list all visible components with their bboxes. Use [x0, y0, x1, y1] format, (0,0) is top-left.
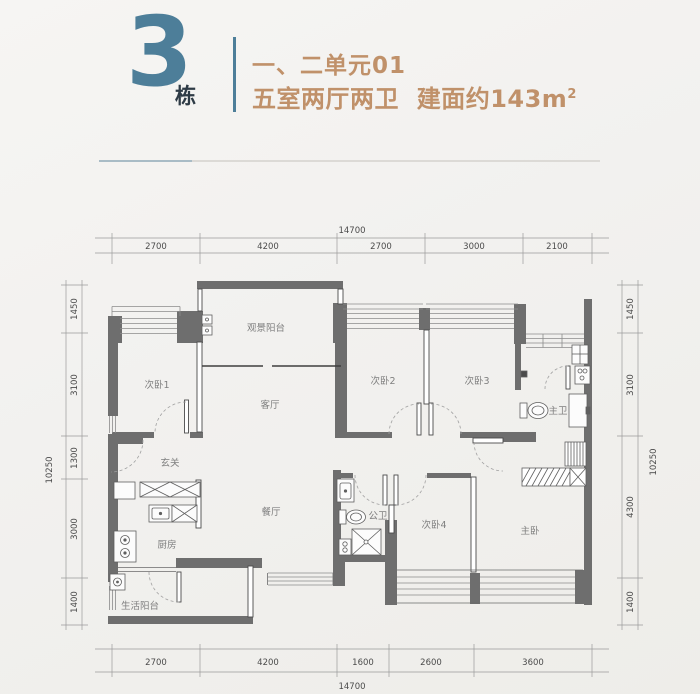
dim-top-segment-2: 2700 — [370, 242, 392, 252]
dimension-left-labels: 10250 1450 3100 1300 3000 1400 — [45, 298, 80, 613]
dim-left-segment-2: 1300 — [70, 447, 80, 469]
room-label-kitchen: 厨房 — [157, 539, 176, 551]
washer-icon — [110, 574, 125, 590]
room-label-master-bedroom: 主卧 — [520, 525, 540, 537]
bedroom2-door-arc — [389, 404, 419, 434]
dim-bottom-segment-3: 2600 — [420, 658, 442, 668]
dim-left-total: 10250 — [45, 456, 55, 483]
room-label-guest-bath: 公卫 — [368, 511, 388, 522]
dim-right-segment-0: 1450 — [626, 298, 636, 320]
room-label-bedroom1: 次卧1 — [144, 379, 169, 391]
master-toilet-icon — [520, 403, 548, 419]
dim-right-segment-1: 3100 — [626, 374, 636, 396]
guest-basin-icon — [337, 479, 354, 502]
dim-right-segment-2: 4300 — [626, 496, 636, 518]
dimension-bottom-labels: 14700 2700 4200 1600 2600 3600 — [145, 658, 544, 692]
dim-left-segment-4: 1400 — [70, 591, 80, 613]
room-label-bedroom3: 次卧3 — [464, 375, 489, 387]
dimension-top-labels: 14700 2700 4200 2700 3000 2100 — [145, 226, 568, 252]
dimension-right — [617, 280, 643, 630]
room-label-dining: 餐厅 — [261, 506, 281, 518]
dimension-top — [95, 233, 609, 264]
dim-bottom-segment-1: 4200 — [257, 658, 279, 668]
bedroom3-door-arc — [431, 404, 461, 434]
room-label-living: 客厅 — [260, 399, 280, 411]
water-heater-icon — [339, 539, 351, 555]
master-shower-icon — [569, 394, 590, 427]
hall-cabinet-icon — [565, 442, 586, 466]
dim-top-segment-4: 2100 — [546, 242, 568, 252]
kitchen-cabinet-icon — [172, 505, 197, 522]
kitchen-sink-icon — [149, 505, 172, 522]
guest-toilet-icon — [339, 510, 366, 524]
room-label-service-balcony: 生活阳台 — [121, 600, 159, 612]
dim-top-segment-3: 3000 — [463, 242, 485, 252]
stove-icon — [114, 531, 136, 562]
dim-top-segment-1: 4200 — [257, 242, 279, 252]
dim-top-total: 14700 — [338, 226, 365, 236]
wardrobe-icon — [520, 468, 586, 486]
dimension-right-labels: 10250 1450 3100 4300 1400 — [626, 298, 659, 613]
hallway-door-arc — [474, 442, 503, 471]
wall-fixture-icon — [521, 371, 527, 377]
foyer-cabinet-icon — [114, 482, 200, 499]
dim-left-segment-3: 3000 — [70, 518, 80, 540]
bedroom4-door-arc — [396, 475, 426, 505]
dim-left-segment-0: 1450 — [70, 298, 80, 320]
service-balcony-door-arc — [149, 572, 179, 602]
room-label-view-balcony: 观景阳台 — [247, 322, 285, 334]
dim-bottom-segment-2: 1600 — [352, 658, 374, 668]
floor-plan-svg: 14700 2700 4200 2700 3000 2100 14700 270… — [0, 0, 700, 694]
dim-bottom-segment-4: 3600 — [522, 658, 544, 668]
minor-lines — [118, 568, 583, 604]
dim-right-segment-3: 1400 — [626, 591, 636, 613]
guest-shower-icon — [352, 529, 381, 555]
dim-top-segment-0: 2700 — [145, 242, 167, 252]
master-bath-door-arc — [545, 366, 568, 389]
bedroom1-door-arc — [155, 402, 186, 433]
floorplan-sheet: 3 栋 一、二单元01 五室两厅两卫 建面约143m2 14700 2700 4… — [0, 0, 700, 694]
guest-bath-door-arc — [355, 475, 385, 505]
dim-bottom-total: 14700 — [338, 682, 365, 692]
room-label-bedroom4: 次卧4 — [421, 519, 446, 531]
dim-bottom-segment-0: 2700 — [145, 658, 167, 668]
room-label-master-bath: 主卫 — [548, 405, 568, 417]
room-label-bedroom2: 次卧2 — [370, 375, 395, 387]
room-label-foyer: 玄关 — [160, 457, 180, 469]
dim-right-total: 10250 — [649, 448, 659, 475]
balcony-appliance-icon — [202, 315, 212, 335]
dim-left-segment-1: 3100 — [70, 374, 80, 396]
